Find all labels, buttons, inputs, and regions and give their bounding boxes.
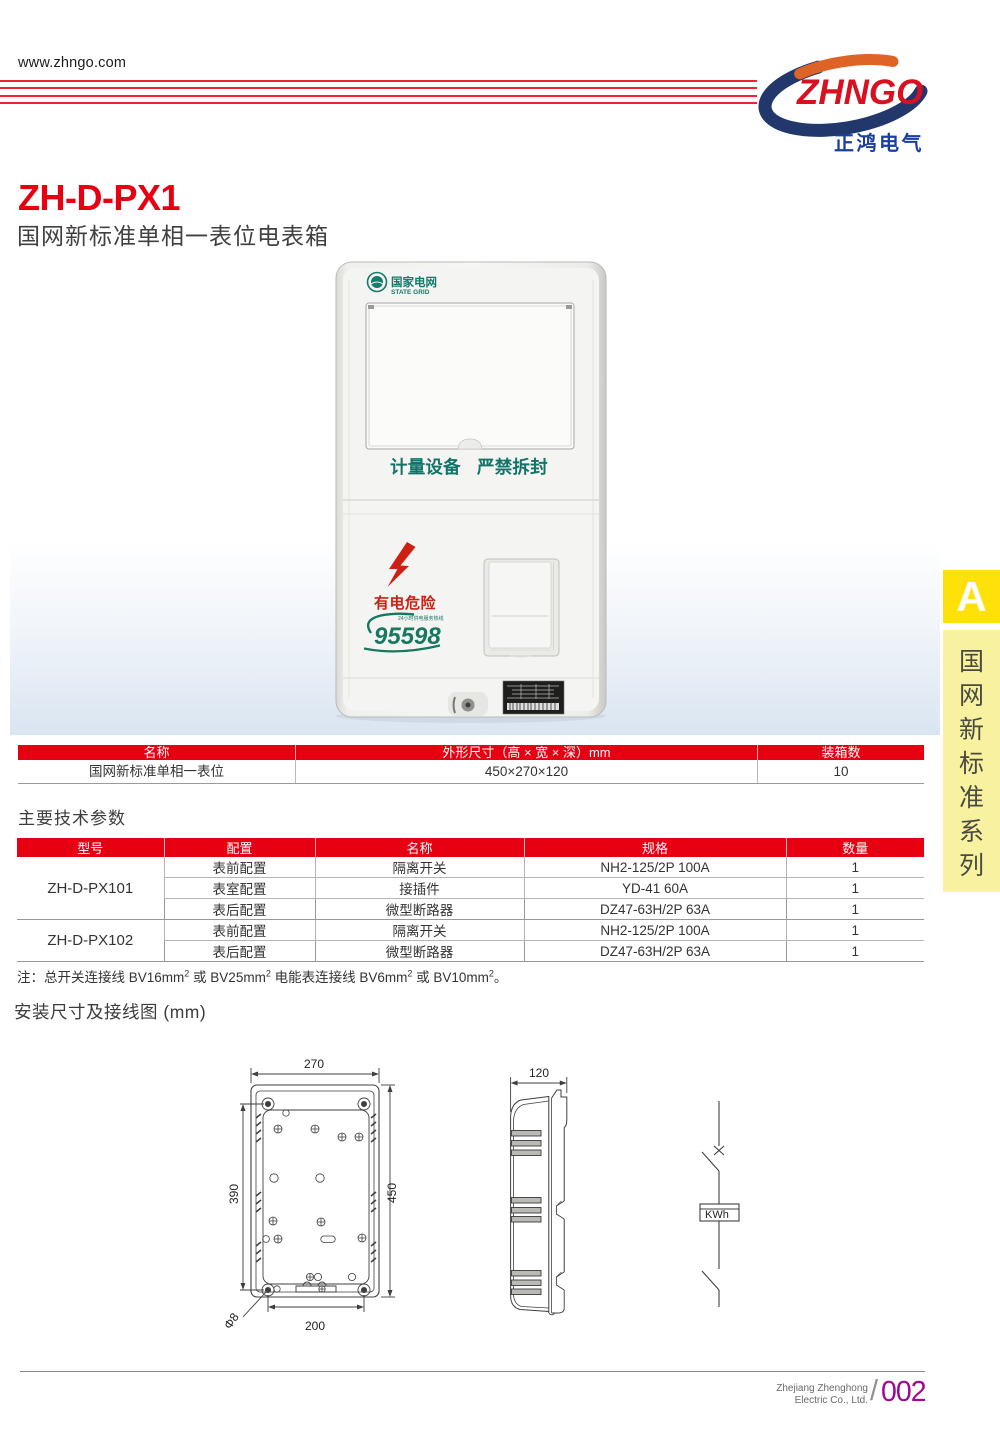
svg-text:24小时供电服务热线: 24小时供电服务热线 <box>398 615 444 622</box>
svg-text:Φ8: Φ8 <box>221 1310 242 1332</box>
svg-text:95598: 95598 <box>374 623 441 650</box>
svg-text:200: 200 <box>305 1319 325 1333</box>
svg-text:STATE GRID: STATE GRID <box>391 289 430 296</box>
svg-text:正鸿电气: 正鸿电气 <box>834 131 924 155</box>
svg-text:严禁拆封: 严禁拆封 <box>476 457 548 477</box>
svg-text:450: 450 <box>385 1183 399 1203</box>
svg-text:有电危险: 有电危险 <box>374 594 437 612</box>
svg-text:ZHNGO: ZHNGO <box>796 73 923 112</box>
svg-text:120: 120 <box>529 1066 549 1080</box>
svg-text:KWh: KWh <box>705 1209 729 1221</box>
svg-text:390: 390 <box>227 1184 241 1204</box>
svg-text:计量设备: 计量设备 <box>390 457 461 477</box>
svg-text:270: 270 <box>304 1057 324 1071</box>
svg-text:国家电网: 国家电网 <box>391 275 437 289</box>
